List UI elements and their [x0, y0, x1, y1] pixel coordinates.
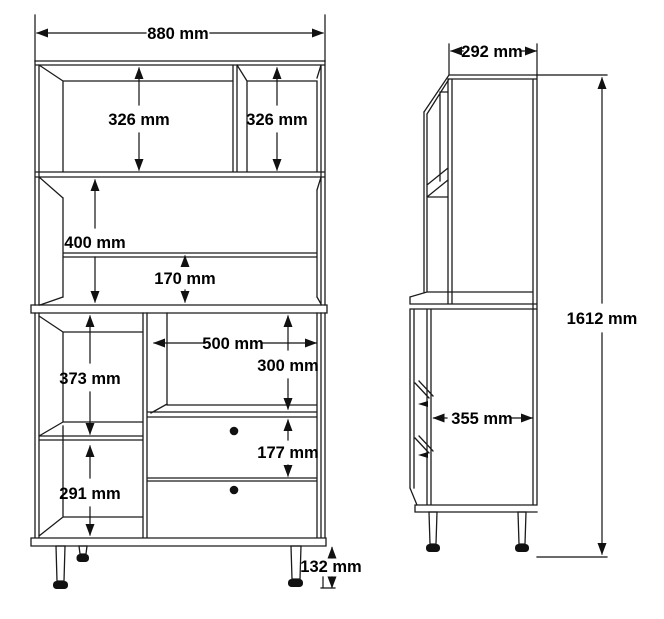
hutch-lines [35, 61, 325, 305]
side-body-outline [410, 75, 537, 512]
dim-middle-height: 400 mm [64, 180, 125, 302]
front-left-foot [53, 581, 68, 589]
dim-lower-left-compartment: 291 mm [59, 446, 120, 535]
open-shelf-height-label: 300 mm [257, 357, 318, 375]
base-lines [31, 313, 326, 546]
lower-left-compartment-label: 291 mm [59, 485, 120, 503]
front-right-foot [288, 579, 303, 587]
dim-leg-height: 132 mm [300, 548, 361, 589]
side-front-foot [426, 544, 440, 552]
upper-left-compartment-label: 373 mm [59, 370, 120, 388]
top-right-height-label: 326 mm [246, 111, 307, 129]
total-height-label: 1612 mm [567, 310, 638, 328]
side-front-leg [429, 512, 437, 544]
dim-top-depth: 292 mm [449, 43, 537, 74]
front-left-leg [56, 546, 65, 581]
dim-upper-left-compartment: 373 mm [59, 316, 120, 434]
front-countertop [31, 305, 327, 313]
side-lines [410, 75, 537, 512]
side-view: 292 mm 355 mm 1612 mm [410, 43, 637, 557]
side-legs [426, 512, 529, 552]
dim-back-rail-height: 170 mm [154, 256, 215, 302]
open-shelf-width-label: 500 mm [202, 335, 263, 353]
back-rail-height-label: 170 mm [154, 270, 215, 288]
body-depth-label: 355 mm [451, 410, 512, 428]
front-legs [53, 546, 303, 589]
dim-overall-width: 880 mm [35, 15, 325, 61]
dim-top-right-height: 326 mm [246, 68, 307, 170]
cabinet-dimension-drawing: 880 mm 326 mm 326 mm 400 mm 170 mm [0, 0, 664, 619]
dim-top-left-height: 326 mm [108, 68, 169, 170]
leg-height-label: 132 mm [300, 558, 361, 576]
drawer-side-mark-bottom [418, 452, 428, 458]
top-left-height-label: 326 mm [108, 111, 169, 129]
side-back-leg [518, 512, 526, 544]
drawer-height-label: 177 mm [257, 444, 318, 462]
bottom-drawer-knob [230, 486, 239, 495]
dim-open-shelf-height: 300 mm [257, 316, 318, 409]
technical-drawing-canvas: 880 mm 326 mm 326 mm 400 mm 170 mm [0, 0, 664, 619]
side-back-foot [515, 544, 529, 552]
overall-width-label: 880 mm [147, 25, 208, 43]
top-drawer-knob [230, 427, 239, 436]
dim-open-shelf-width: 500 mm [154, 335, 316, 353]
floor-bracket [321, 577, 335, 588]
dim-drawer-height: 177 mm [257, 420, 318, 476]
front-hutch-outline [35, 61, 325, 305]
back-left-leg [79, 546, 87, 554]
top-depth-label: 292 mm [461, 43, 522, 61]
front-view: 880 mm 326 mm 326 mm 400 mm 170 mm [31, 15, 362, 589]
dim-body-depth: 355 mm [434, 410, 533, 428]
middle-height-label: 400 mm [64, 234, 125, 252]
back-left-foot [77, 554, 90, 562]
drawer-side-mark-top [418, 401, 428, 407]
countertop-lines [31, 305, 327, 313]
drawer-knobs [230, 427, 239, 495]
dim-total-height: 1612 mm [537, 75, 637, 557]
front-base-outline [31, 313, 326, 546]
